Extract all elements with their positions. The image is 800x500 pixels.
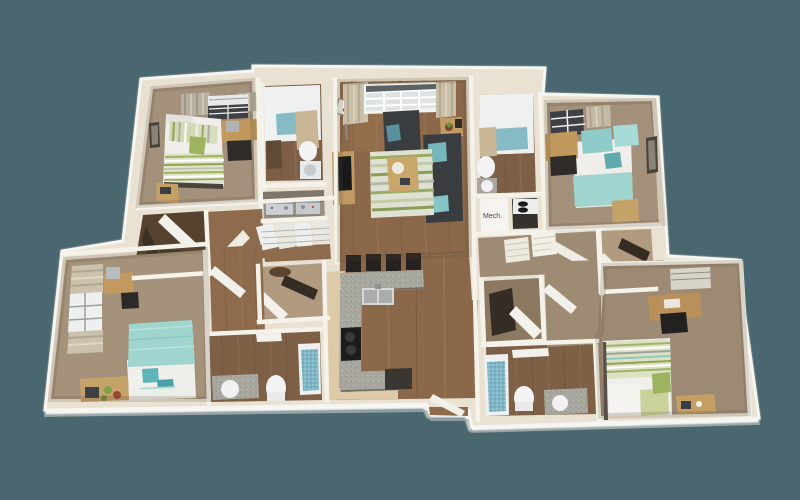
svg-text:Mech.: Mech. — [483, 213, 502, 220]
